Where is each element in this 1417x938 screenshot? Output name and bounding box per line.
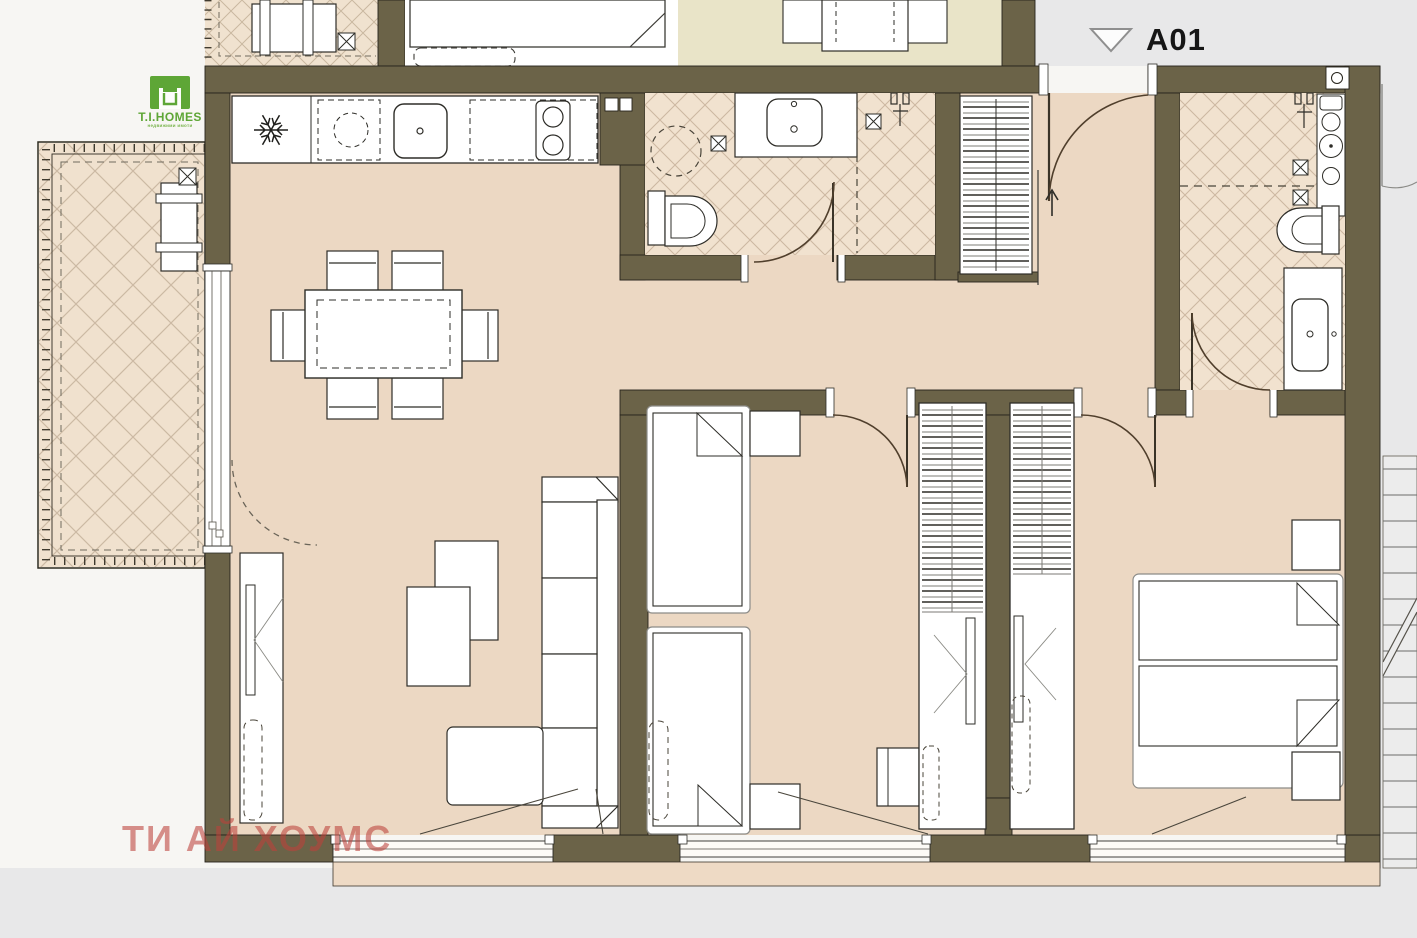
sink-icon — [394, 104, 447, 158]
washer-dryer-stack — [1317, 94, 1345, 216]
floor-drain-icon — [179, 168, 196, 185]
tv-unit — [240, 553, 283, 823]
nightstand — [750, 784, 800, 829]
floor-drain-icon — [1293, 190, 1308, 205]
nightstand — [750, 411, 800, 456]
chair — [271, 310, 308, 361]
single-bed-1 — [647, 406, 750, 613]
floorplan-screenshot: A01 T.I.HOMES недвижими имоти ТИ АЙ ХОУМ… — [0, 0, 1417, 938]
wardrobe-1 — [919, 403, 986, 829]
chair — [327, 378, 378, 419]
dining-table — [305, 290, 462, 378]
logo-tagline: недвижими имоти — [135, 124, 205, 129]
vanity-sink — [735, 93, 857, 157]
ac-unit-icon — [156, 183, 202, 271]
floor-drain-icon — [1293, 160, 1308, 175]
upper-terrace — [205, 0, 378, 66]
wardrobe-2 — [1010, 403, 1074, 829]
watermark-text: ТИ АЙ ХОУМС — [122, 818, 392, 860]
upper-wall — [1002, 0, 1035, 66]
vanity-sink — [1284, 268, 1342, 390]
upper-apartment-strip — [205, 0, 1035, 66]
nightstand — [1292, 752, 1340, 800]
terrace — [38, 142, 205, 568]
cooktop-icon — [536, 101, 570, 160]
bathroom-1 — [645, 93, 935, 262]
kitchen-counter — [232, 96, 598, 163]
upper-wall — [378, 0, 405, 66]
unit-label-text: A01 — [1146, 22, 1206, 58]
floor-drain-icon — [338, 33, 355, 50]
floor-drain-icon — [866, 114, 881, 129]
nightstand — [1292, 520, 1340, 570]
entrance-closet — [960, 96, 1032, 274]
toilet-icon — [1277, 206, 1339, 254]
floorplan-drawing — [0, 0, 1417, 938]
logo: T.I.HOMES недвижими имоти — [135, 76, 205, 129]
unit-label: A01 — [1088, 22, 1206, 58]
upper-dining-table — [783, 0, 947, 51]
floor-drain-icon — [711, 136, 726, 151]
desk — [877, 748, 919, 806]
house-logo-icon — [150, 76, 190, 110]
triangle-down-icon — [1088, 26, 1134, 54]
chair — [461, 310, 498, 361]
chair — [392, 251, 443, 292]
chair — [392, 378, 443, 419]
chair — [327, 251, 378, 292]
single-bed-2 — [647, 627, 750, 834]
bathroom-2 — [1180, 93, 1345, 390]
ac-unit-icon — [252, 0, 336, 55]
window-sill-band — [333, 862, 1380, 886]
chaise — [447, 727, 543, 805]
